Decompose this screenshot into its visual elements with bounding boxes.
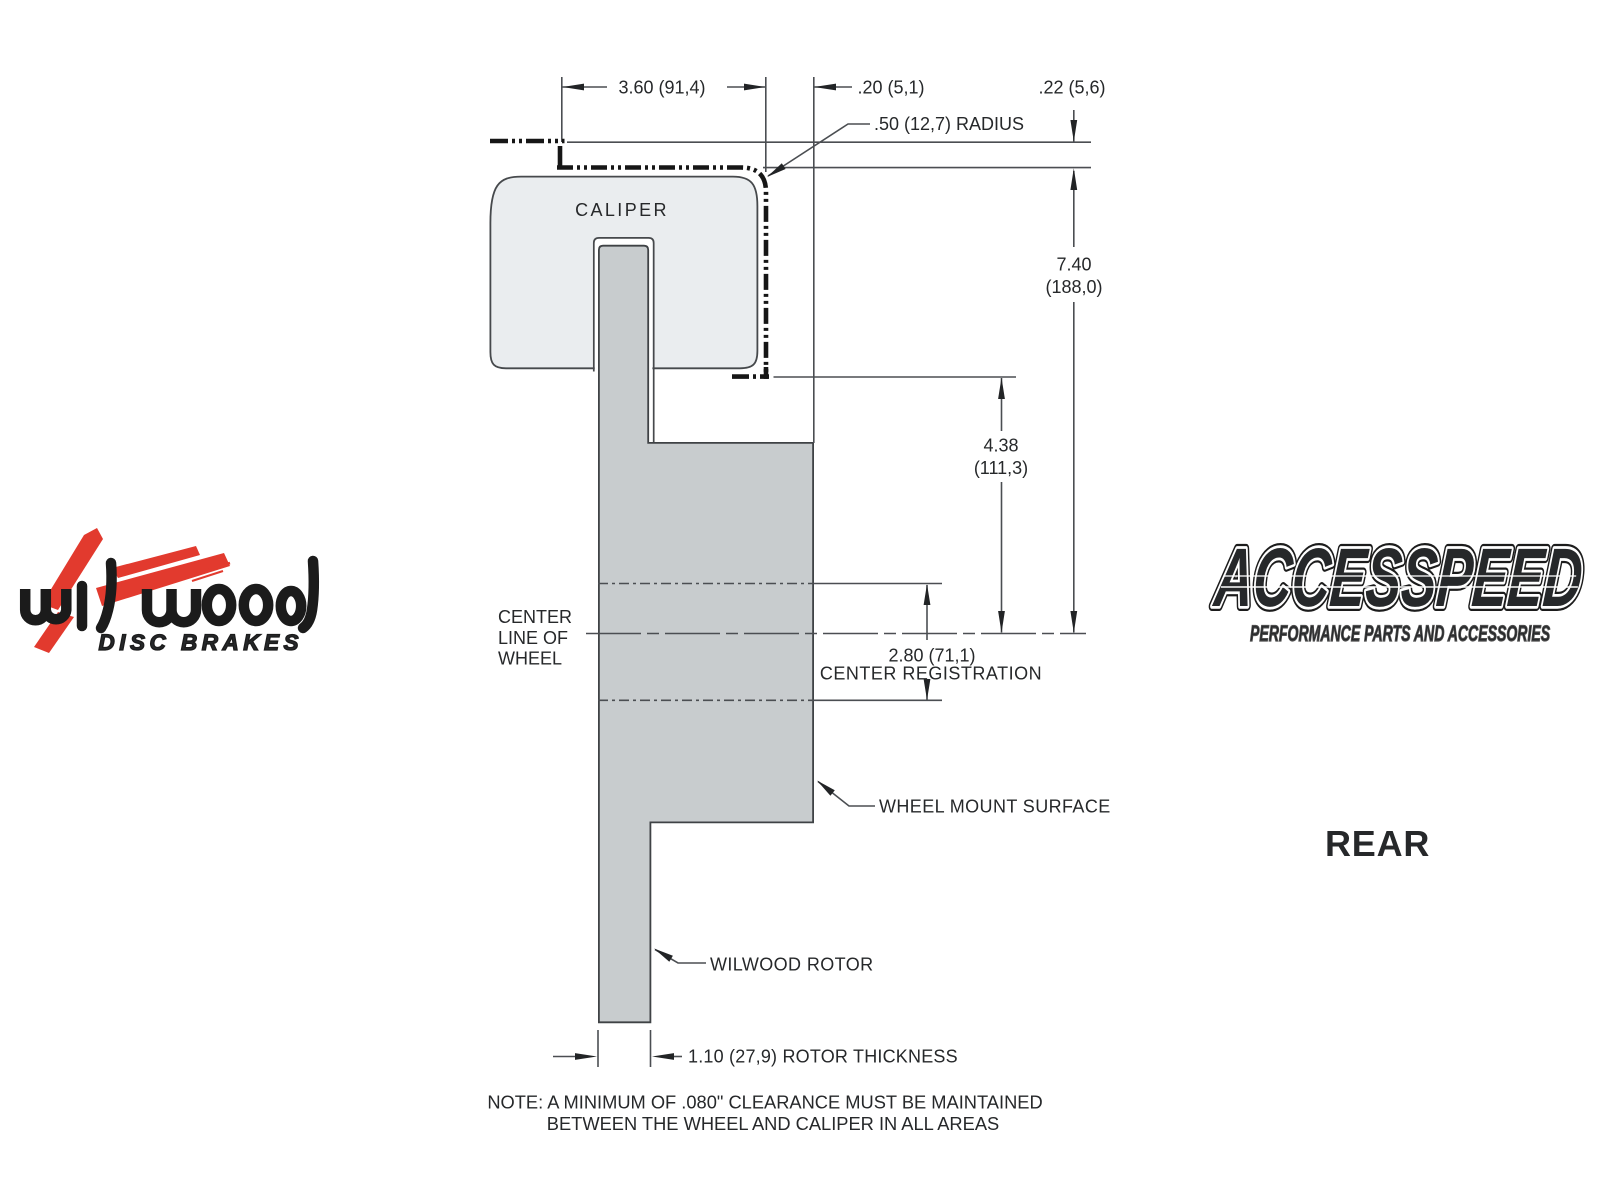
svg-text:.20 (5,1): .20 (5,1) xyxy=(857,78,924,98)
svg-text:CENTER: CENTER xyxy=(498,607,572,627)
svg-text:BETWEEN THE WHEEL AND CALIPER: BETWEEN THE WHEEL AND CALIPER IN ALL ARE… xyxy=(547,1113,999,1134)
svg-text:PERFORMANCE PARTS AND ACCESSOR: PERFORMANCE PARTS AND ACCESSORIES xyxy=(1250,621,1551,646)
svg-text:.50 (12,7) RADIUS: .50 (12,7) RADIUS xyxy=(874,114,1024,134)
svg-text:REAR: REAR xyxy=(1325,823,1430,864)
svg-text:(188,0): (188,0) xyxy=(1045,277,1102,297)
svg-text:NOTE: A MINIMUM OF .080" CLEAR: NOTE: A MINIMUM OF .080" CLEARANCE MUST … xyxy=(487,1092,1042,1113)
svg-text:CALIPER: CALIPER xyxy=(575,200,669,220)
svg-text:DISC BRAKES: DISC BRAKES xyxy=(99,630,304,655)
svg-text:ACCESSPEED: ACCESSPEED xyxy=(1210,531,1586,624)
svg-text:4.38: 4.38 xyxy=(983,436,1018,456)
svg-text:CENTER REGISTRATION: CENTER REGISTRATION xyxy=(820,664,1042,684)
svg-text:3.60 (91,4): 3.60 (91,4) xyxy=(618,78,705,98)
svg-text:WILWOOD ROTOR: WILWOOD ROTOR xyxy=(710,955,874,975)
svg-text:7.40: 7.40 xyxy=(1056,255,1091,275)
svg-text:1.10 (27,9) ROTOR THICKNESS: 1.10 (27,9) ROTOR THICKNESS xyxy=(688,1047,958,1067)
svg-text:WHEEL MOUNT SURFACE: WHEEL MOUNT SURFACE xyxy=(879,797,1111,817)
svg-text:LINE OF: LINE OF xyxy=(498,628,568,648)
svg-text:.22 (5,6): .22 (5,6) xyxy=(1038,78,1105,98)
svg-text:(111,3): (111,3) xyxy=(974,458,1028,478)
svg-text:2.80 (71,1): 2.80 (71,1) xyxy=(888,646,975,666)
svg-text:WHEEL: WHEEL xyxy=(498,649,562,669)
